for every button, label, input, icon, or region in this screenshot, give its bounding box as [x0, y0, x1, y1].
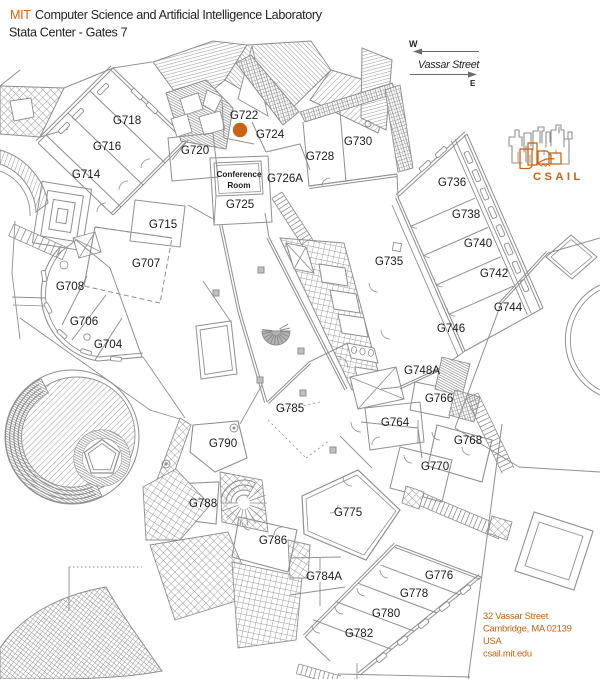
svg-text:Vassar Street: Vassar Street	[418, 59, 480, 71]
svg-text:G784A: G784A	[306, 570, 342, 583]
svg-text:G776: G776	[425, 569, 453, 582]
svg-text:G706: G706	[70, 315, 98, 328]
svg-text:USA: USA	[483, 635, 503, 646]
svg-text:G718: G718	[113, 114, 141, 127]
svg-text:G788: G788	[189, 497, 217, 510]
svg-text:G722: G722	[230, 109, 258, 122]
svg-text:G714: G714	[72, 168, 101, 181]
svg-text:E: E	[470, 79, 476, 88]
svg-text:G775: G775	[334, 506, 362, 519]
svg-text:G728: G728	[306, 150, 334, 163]
svg-text:G748A: G748A	[404, 364, 440, 377]
svg-text:csail.mit.edu: csail.mit.edu	[483, 648, 532, 659]
svg-text:G742: G742	[480, 267, 508, 280]
svg-text:G785: G785	[276, 402, 304, 415]
svg-text:G744: G744	[494, 301, 523, 314]
svg-text:G736: G736	[438, 176, 466, 189]
svg-text:MIT Computer Science and Artif: MIT Computer Science and Artificial Inte…	[10, 8, 323, 22]
svg-text:G770: G770	[421, 460, 449, 473]
svg-text:G764: G764	[381, 416, 410, 429]
svg-text:G725: G725	[226, 198, 254, 211]
svg-text:Room: Room	[227, 181, 250, 190]
svg-text:G740: G740	[464, 237, 492, 250]
svg-text:W: W	[409, 39, 418, 49]
svg-text:G707: G707	[132, 257, 160, 270]
svg-text:G708: G708	[56, 280, 84, 293]
svg-text:Stata Center - Gates 7: Stata Center - Gates 7	[9, 26, 128, 40]
svg-text:G724: G724	[256, 128, 285, 141]
svg-text:G786: G786	[259, 534, 287, 547]
svg-text:G780: G780	[372, 607, 400, 620]
svg-text:G704: G704	[94, 338, 123, 351]
svg-text:32 Vassar Street: 32 Vassar Street	[483, 610, 549, 621]
svg-text:G790: G790	[209, 437, 237, 450]
svg-text:G768: G768	[454, 434, 482, 447]
svg-text:G716: G716	[93, 140, 121, 153]
svg-text:G715: G715	[149, 218, 177, 231]
svg-text:Cambridge, MA 02139: Cambridge, MA 02139	[483, 623, 572, 634]
svg-text:G738: G738	[452, 208, 480, 221]
svg-text:Conference: Conference	[216, 170, 261, 179]
svg-text:G746: G746	[437, 322, 465, 335]
svg-text:G782: G782	[345, 627, 373, 640]
svg-text:G730: G730	[344, 135, 372, 148]
svg-text:G735: G735	[375, 255, 403, 268]
svg-text:G778: G778	[400, 587, 428, 600]
svg-text:CSAIL: CSAIL	[533, 171, 584, 183]
svg-text:G720: G720	[181, 144, 209, 157]
svg-text:G726A: G726A	[267, 172, 303, 185]
svg-text:G766: G766	[425, 392, 453, 405]
